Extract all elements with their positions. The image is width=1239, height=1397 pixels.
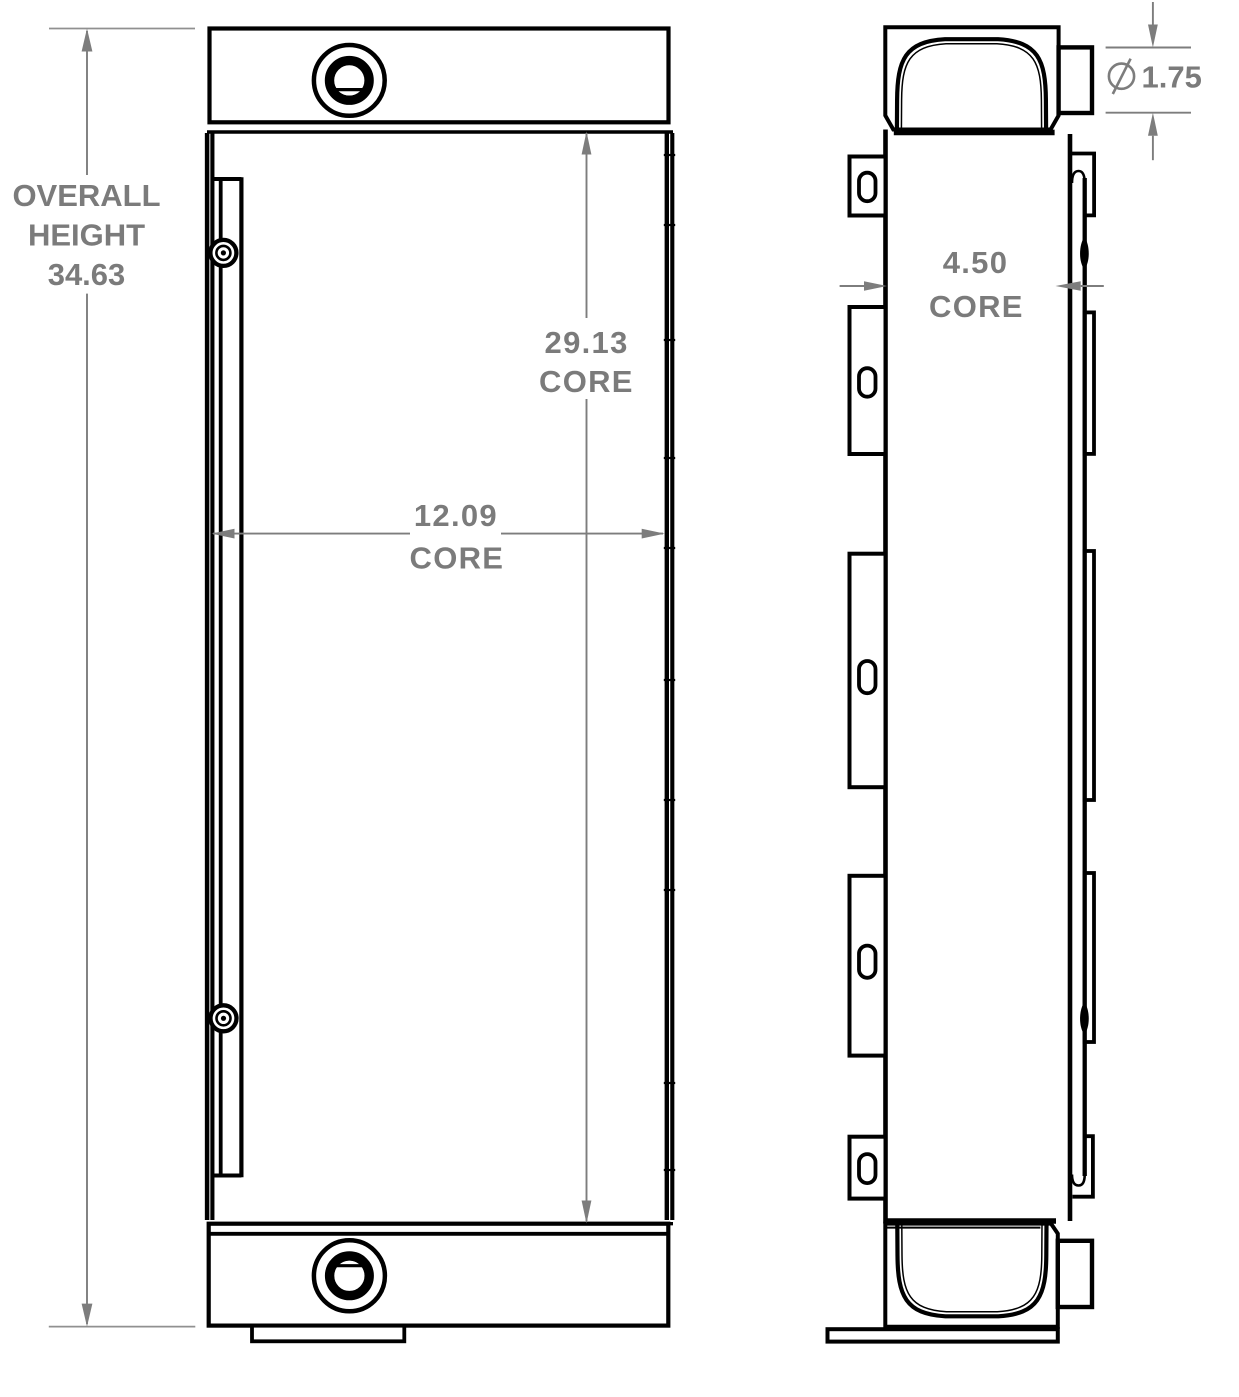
svg-text:OVERALL: OVERALL — [12, 178, 160, 213]
svg-text:1.75: 1.75 — [1142, 60, 1202, 95]
svg-text:34.63: 34.63 — [48, 257, 126, 292]
svg-text:CORE: CORE — [929, 289, 1024, 324]
svg-text:HEIGHT: HEIGHT — [28, 217, 145, 252]
svg-text:CORE: CORE — [539, 364, 634, 399]
svg-text:29.13: 29.13 — [545, 325, 629, 360]
svg-text:CORE: CORE — [410, 541, 505, 576]
svg-text:12.09: 12.09 — [414, 498, 498, 533]
svg-text:4.50: 4.50 — [943, 245, 1009, 280]
